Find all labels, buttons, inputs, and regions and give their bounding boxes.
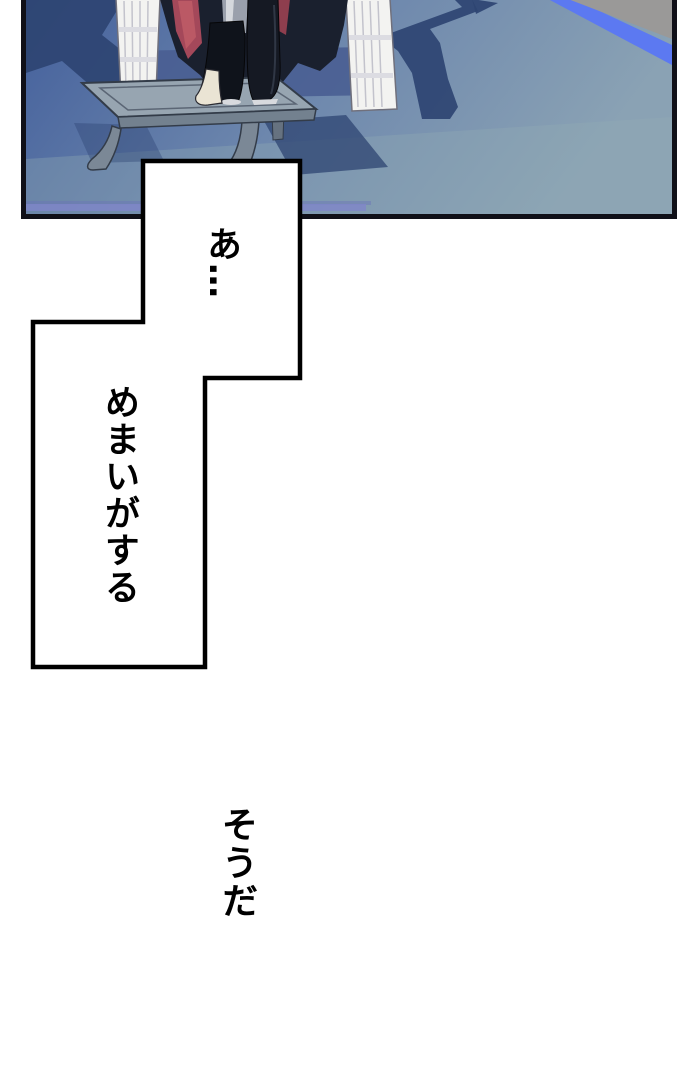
bubble-1-text: あ…	[203, 226, 238, 300]
bubble-2-text: めまいがする	[101, 384, 136, 606]
speech-bubble-outline	[33, 161, 300, 667]
speech-bubbles	[26, 155, 308, 675]
narration-text: そうだ	[218, 806, 254, 920]
left-boot-sole	[221, 99, 241, 105]
right-throne-pillar	[346, 0, 397, 111]
manga-page: あ… めまいがする そうだ	[0, 0, 700, 1068]
